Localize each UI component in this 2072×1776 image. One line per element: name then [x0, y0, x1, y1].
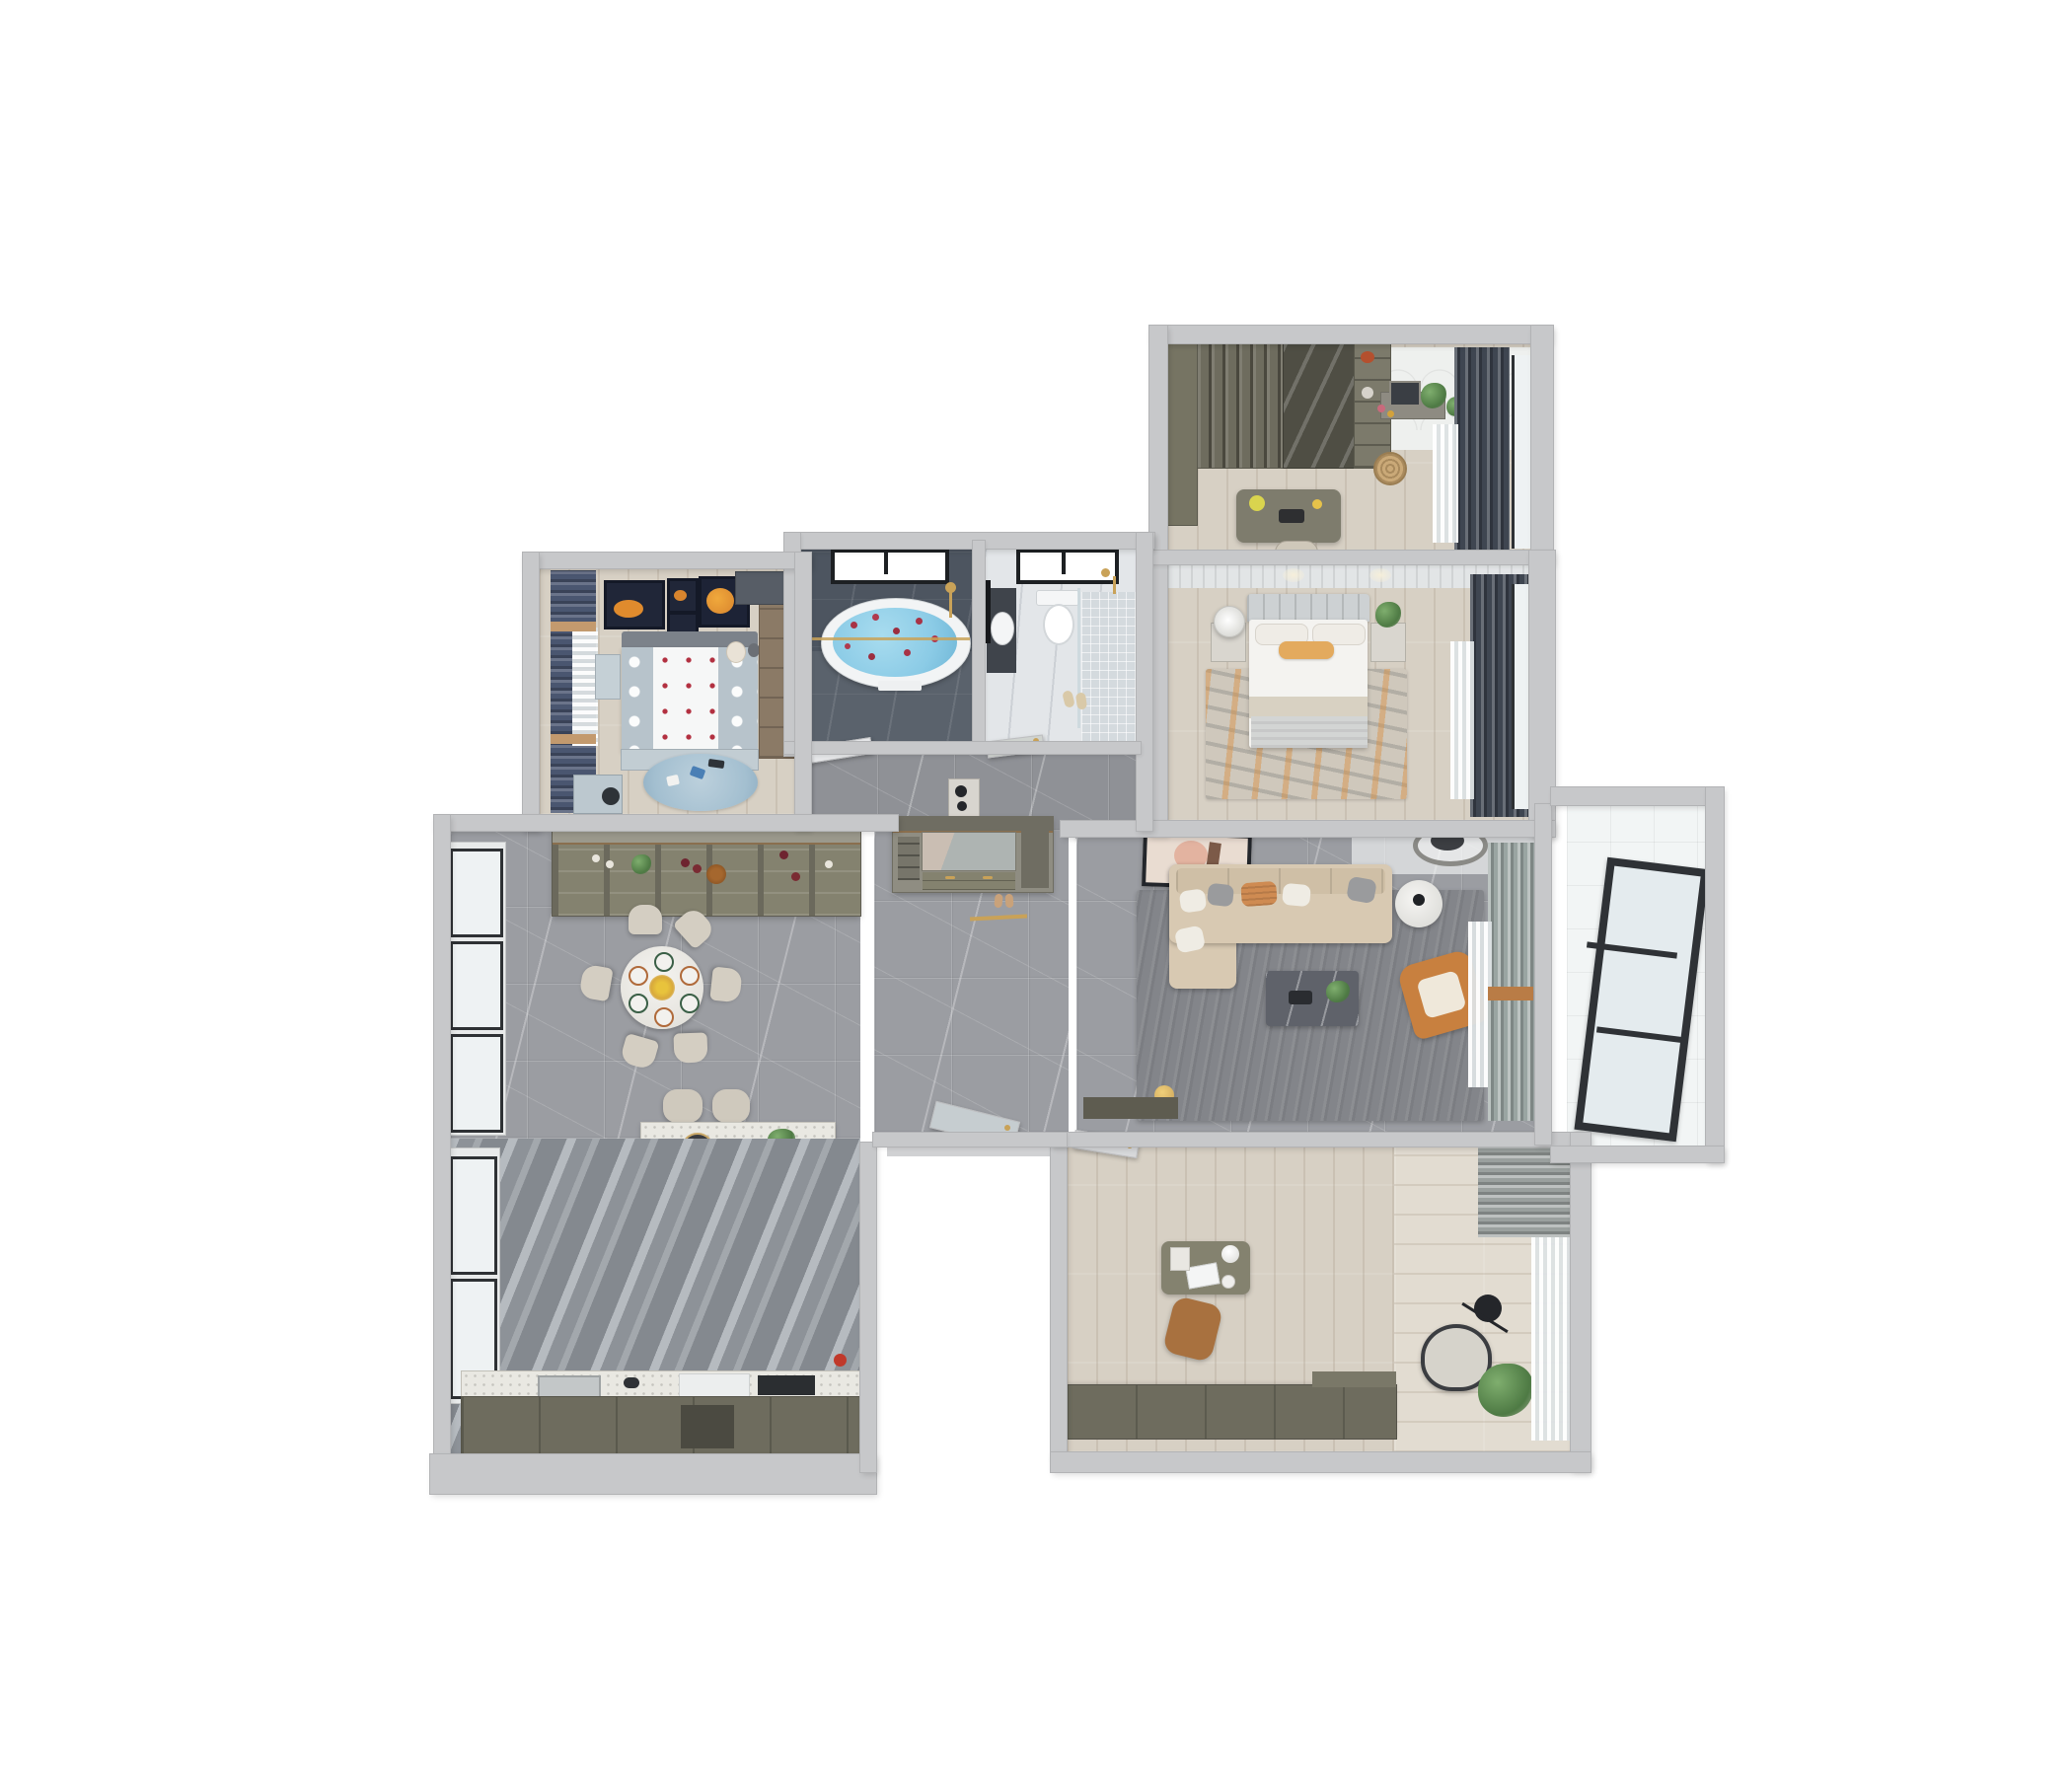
bath-towel	[878, 681, 922, 691]
wall-kitchen-right-notch	[860, 1143, 876, 1472]
centerpiece-flowers	[649, 975, 675, 1000]
cabinet-open-shelf	[681, 1405, 734, 1448]
wall-office-right	[1571, 1133, 1591, 1470]
bed-orange-pillow	[1279, 641, 1334, 659]
bed-foot-throw	[1251, 716, 1368, 748]
cloakroom-sheer	[1433, 424, 1458, 543]
dining-set	[579, 905, 745, 1071]
desk-cup	[1312, 499, 1322, 509]
floorplan-stage	[0, 0, 2072, 1776]
desk-notebook	[1170, 1247, 1190, 1271]
wall-kitchen-bottom	[430, 1454, 876, 1494]
wall-balcony-top	[1551, 787, 1709, 805]
gold-partition-rail	[804, 637, 970, 640]
sofa-pillow-orange	[1240, 881, 1278, 907]
dinner-plate	[654, 1007, 674, 1027]
bath2-window	[1016, 549, 1119, 584]
dining-chair	[673, 1032, 707, 1063]
dinner-plate	[680, 966, 700, 986]
shower-gold-arm	[1113, 576, 1116, 594]
dinner-plate	[629, 966, 648, 986]
rose-petal	[851, 622, 857, 629]
wall-baths-top	[784, 533, 1154, 549]
wall-balcony-bottom	[1551, 1147, 1724, 1162]
wall-kids-top	[523, 553, 811, 568]
wall-balcony-right	[1706, 787, 1724, 1162]
wardrobe-left-column	[1167, 343, 1197, 525]
rose-petal	[893, 628, 900, 634]
wall-cloakroom-right	[1531, 326, 1553, 564]
dinner-plate	[680, 994, 700, 1013]
wall-baths-bottom	[784, 742, 1141, 754]
wall-bathB-right	[1137, 533, 1152, 831]
dinner-plate	[629, 994, 648, 1013]
bed-headboard	[1247, 594, 1369, 622]
kids-art-moon	[706, 588, 734, 614]
wall-living-balcony	[1535, 804, 1551, 1145]
cloakroom-curtains	[1454, 347, 1510, 551]
perfume-pink	[1377, 405, 1385, 412]
kids-sheer	[572, 628, 598, 746]
kids-art-planet	[614, 600, 643, 618]
kids-pelmet-wood	[551, 622, 596, 631]
vanity-sink	[991, 612, 1014, 645]
dining-chair	[672, 905, 716, 949]
wall-baths-divider	[973, 541, 985, 744]
office-cabinet-step	[1312, 1371, 1396, 1387]
desk-dome-lamp	[1221, 1245, 1239, 1263]
wall-sconce-glow	[1283, 568, 1304, 582]
rose-petal	[916, 618, 923, 625]
perfume-gold	[1387, 410, 1394, 417]
wall-office-bottom	[1051, 1452, 1591, 1472]
foyer-slipper2	[1005, 894, 1014, 909]
wall-office-top	[1051, 1133, 1589, 1147]
shelf-bag2	[1362, 387, 1373, 399]
drawer-handle	[945, 876, 955, 879]
shoe-niche	[923, 833, 1015, 870]
table-lamp	[1214, 606, 1245, 637]
kids-round-rug	[643, 754, 758, 811]
dining-chair	[629, 905, 662, 934]
kids-bed-runner	[653, 647, 718, 752]
entry-door-handle	[1004, 1125, 1010, 1131]
sofa-pillow-gray	[1207, 883, 1234, 908]
bath-window-mullion	[884, 551, 888, 574]
teddy-bear	[726, 641, 746, 663]
shoe-drawers	[923, 872, 1015, 890]
shower-bar	[949, 592, 952, 618]
red-kettle	[834, 1354, 847, 1367]
bed-blanket	[1249, 697, 1368, 718]
dining-chair	[620, 1033, 660, 1071]
bar-stool2	[712, 1089, 750, 1123]
kitchen-window-pane	[450, 1156, 497, 1275]
cooktop	[758, 1375, 815, 1395]
shower-gold-head	[1101, 568, 1110, 577]
shelf-bag	[1361, 351, 1374, 363]
rose-petal	[845, 643, 851, 649]
shower-mosaic-floor	[1081, 592, 1137, 742]
kids-pelmet-wood2	[551, 734, 596, 744]
rose-petal	[872, 614, 879, 621]
toy-antlers	[748, 643, 760, 657]
rattan-basket	[1373, 452, 1407, 485]
kitchen-cabinets	[462, 1397, 860, 1454]
kids-chair	[602, 787, 620, 805]
entry-threshold	[887, 1147, 1053, 1156]
sofa-pillow-white2	[1282, 883, 1311, 907]
wine-bottle	[791, 872, 800, 881]
curtain-pelmet-wood	[1488, 987, 1533, 1000]
kids-shelf	[596, 655, 620, 699]
kids-art-small-planet	[674, 590, 687, 601]
master-sheer	[1450, 641, 1474, 799]
dinner-plate	[654, 952, 674, 972]
wall-kids-left	[523, 553, 539, 831]
bath2-window-mullion	[1062, 551, 1066, 574]
office-sheer-right	[1531, 1237, 1571, 1441]
rose-petal	[904, 649, 911, 656]
wine-bottle	[693, 864, 702, 873]
wine-bottle	[779, 851, 788, 859]
side-table-decor	[1413, 894, 1425, 906]
glassware	[825, 860, 833, 868]
white-appliance	[679, 1373, 750, 1397]
vanity-mirror	[985, 580, 991, 643]
hall-decor-black	[955, 785, 967, 797]
sofa-pillow-gray2	[1346, 876, 1377, 904]
kitchen-sink	[538, 1375, 601, 1398]
dining-chair	[709, 967, 742, 1003]
wall-cloakroom-top	[1149, 326, 1551, 343]
office-cabinet	[1067, 1385, 1396, 1439]
desk-saucer	[1221, 1275, 1235, 1289]
living-console	[1083, 1097, 1178, 1119]
living-curtains-bottom	[1488, 1000, 1535, 1121]
toilet-bowl	[1043, 604, 1074, 645]
drawer-handle2	[983, 876, 993, 879]
wine-rack-gold	[706, 864, 726, 884]
kitchen-faucet	[624, 1377, 639, 1388]
wardrobe-glass	[1284, 343, 1357, 468]
shoe-niche-shelf	[898, 837, 920, 880]
rose-petal	[868, 653, 875, 660]
wall-cloakroom-master-divider	[1149, 551, 1553, 564]
wall-notch-right	[1051, 1143, 1067, 1460]
wall-dining-top	[434, 815, 898, 831]
wall-left-main	[434, 815, 450, 1472]
shoe-side-column	[1021, 821, 1049, 888]
dressing-mirror	[1389, 381, 1421, 407]
wall-sconce-glow2	[1369, 568, 1391, 582]
dining-window-pane	[450, 941, 503, 1030]
coffee-table-tray	[1289, 991, 1312, 1004]
dining-window-pane	[450, 849, 503, 937]
wall-master-bottom	[1061, 821, 1555, 837]
bar-stool	[663, 1089, 703, 1123]
wall-kids-right	[795, 553, 811, 831]
hall-decor-black2	[957, 801, 967, 811]
desk-flowers	[1249, 495, 1265, 511]
wine-cabinet-top-band	[553, 831, 860, 845]
wall-entry-head	[873, 1133, 1067, 1147]
dining-window-pane	[450, 1034, 503, 1133]
living-curtains-top	[1488, 843, 1535, 991]
dining-chair	[578, 964, 613, 1002]
wine-bottle	[681, 858, 690, 867]
glassware	[592, 854, 600, 862]
nightstand-right	[1371, 624, 1405, 661]
bath-window	[831, 549, 949, 584]
glassware	[606, 860, 614, 868]
bathtub-water	[833, 608, 957, 677]
desk-tray	[1279, 509, 1304, 523]
